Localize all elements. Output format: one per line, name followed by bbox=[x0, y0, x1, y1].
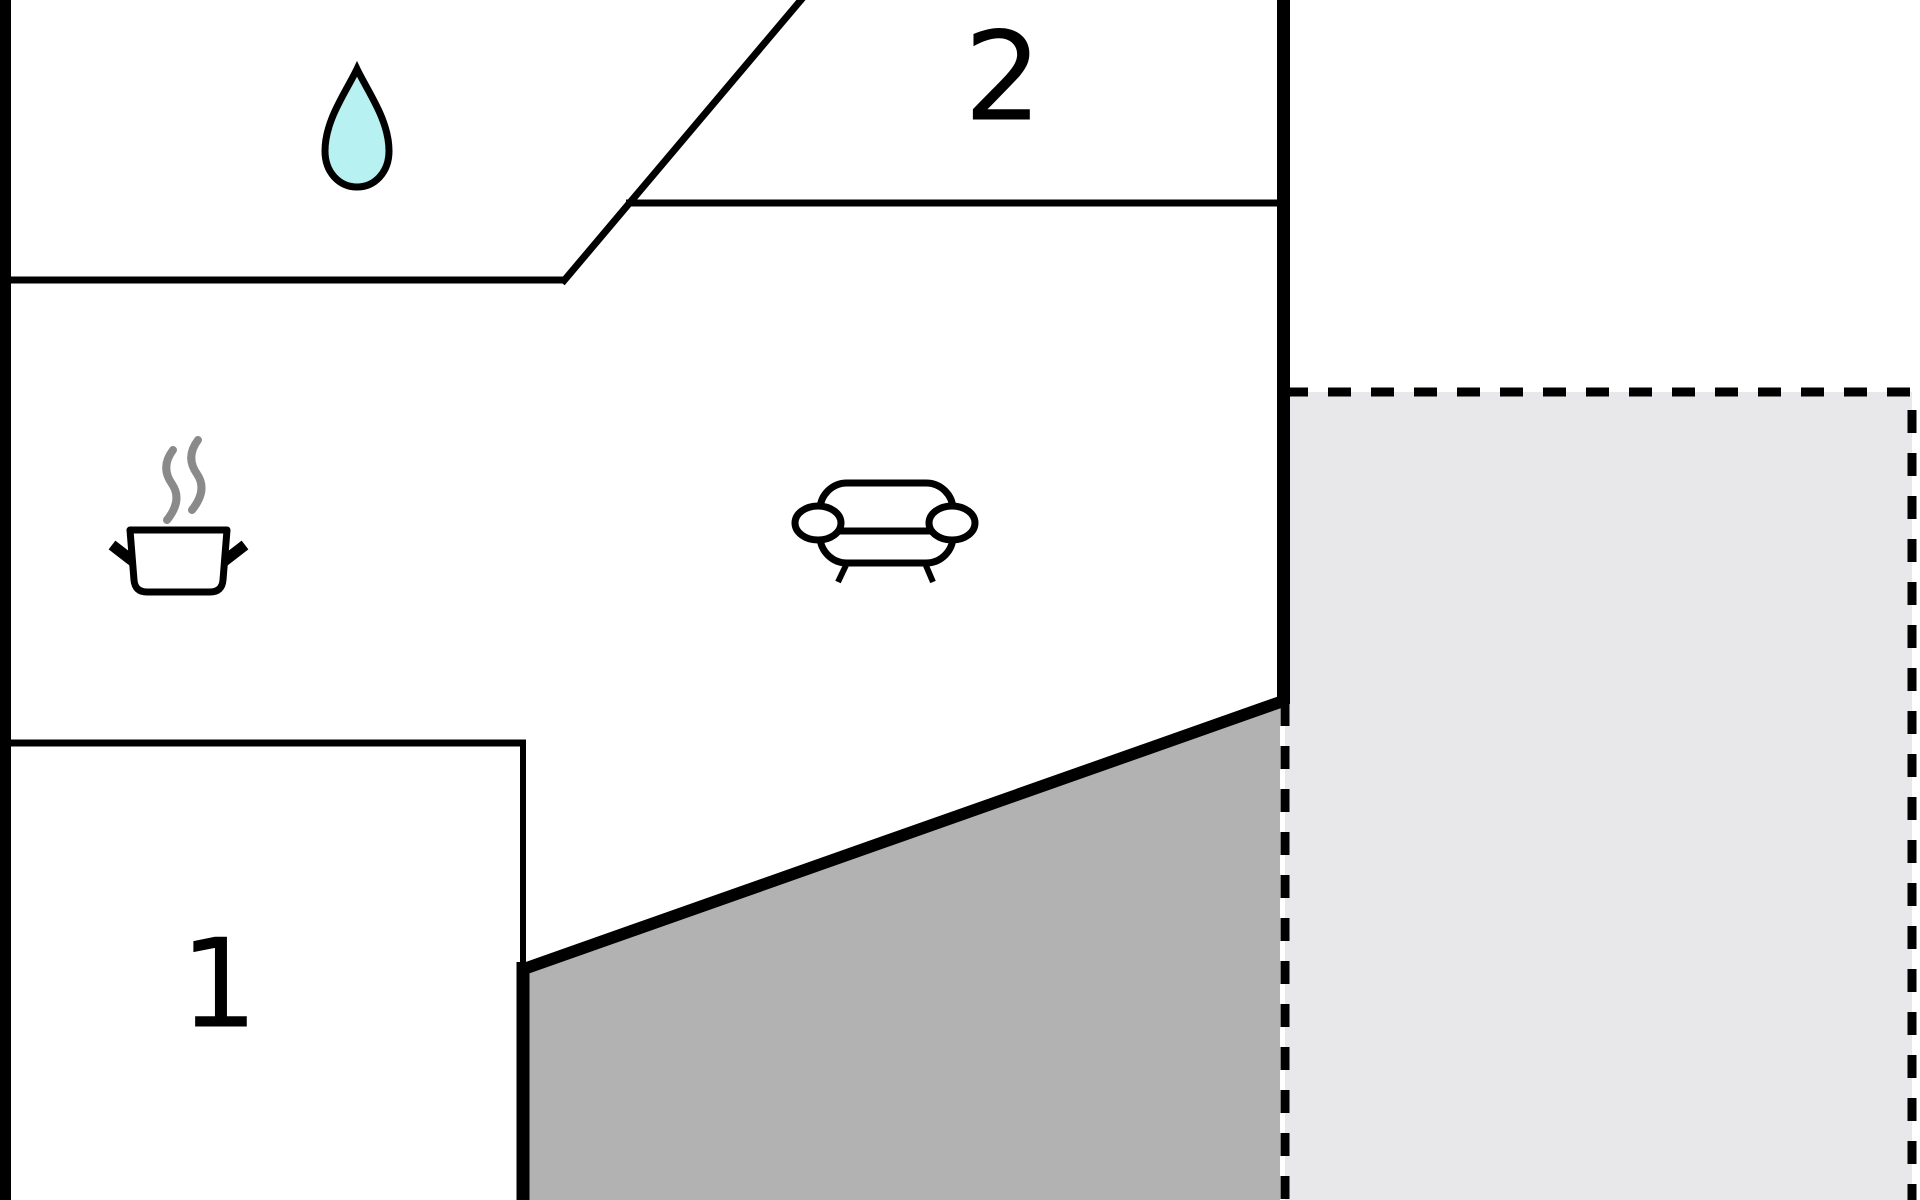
patio-area bbox=[1285, 392, 1912, 1200]
sofa-right-armrest bbox=[929, 506, 975, 540]
right-wall bbox=[1277, 0, 1290, 704]
steam-left-icon bbox=[166, 450, 176, 520]
floor-plan-canvas: 2 1 bbox=[0, 0, 1920, 1200]
floor-plan: 2 1 bbox=[0, 0, 1920, 1200]
water-drop-icon bbox=[325, 69, 389, 187]
terrace-area bbox=[526, 705, 1280, 1200]
pot-body bbox=[130, 530, 227, 592]
left-wall bbox=[0, 0, 11, 1200]
bathroom-diagonal-wall bbox=[562, 0, 806, 283]
cooking-pot-icon bbox=[112, 440, 245, 592]
sofa-icon bbox=[795, 483, 975, 582]
steam-right-icon bbox=[191, 440, 201, 510]
sofa-left-armrest bbox=[795, 506, 841, 540]
room-2-label: 2 bbox=[964, 7, 1042, 150]
room-1-label: 1 bbox=[180, 914, 258, 1057]
